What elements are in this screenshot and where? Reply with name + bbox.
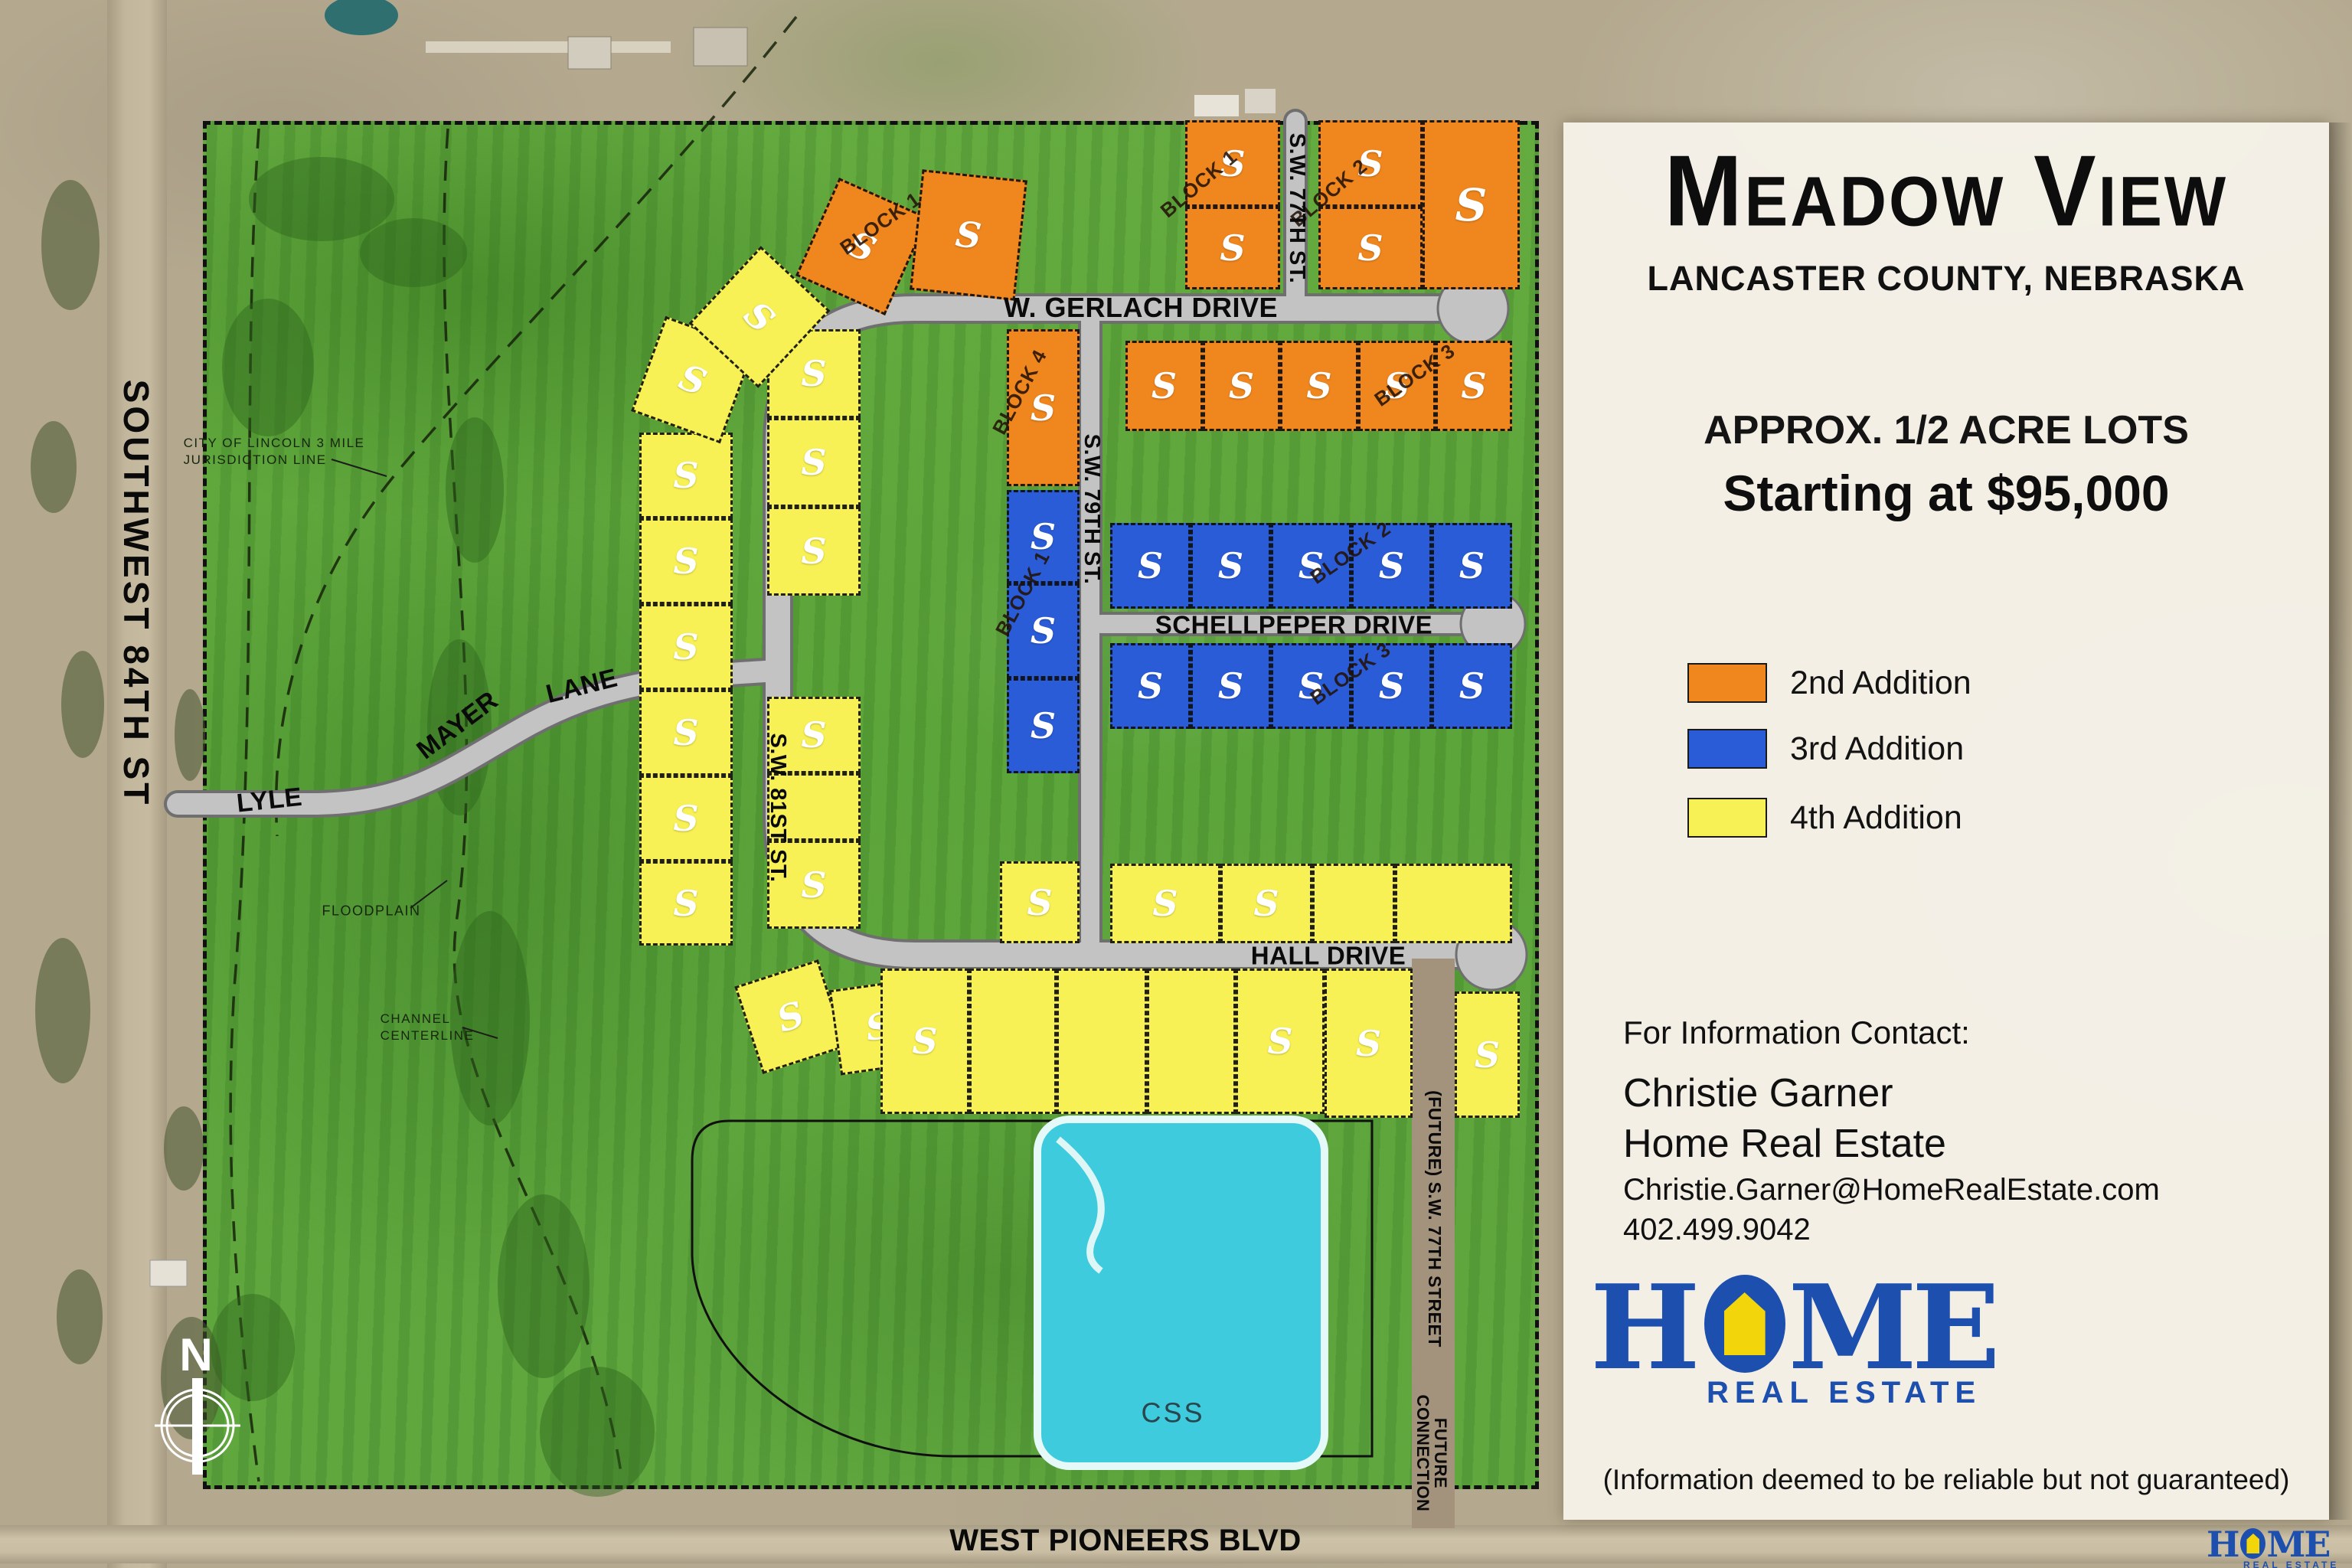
sold-marker: S: [673, 629, 698, 665]
small-pond: [325, 0, 398, 35]
sold-marker: S: [1151, 368, 1177, 403]
sold-marker: S: [1152, 886, 1178, 921]
sold-marker: S: [1356, 1026, 1381, 1061]
channel-woods: [211, 157, 655, 1497]
sold-marker: S: [1267, 1024, 1292, 1059]
street-label-hall: HALL DRIVE: [1251, 943, 1406, 970]
legend-swatch-3rd-addition: [1687, 729, 1767, 769]
sold-marker: S: [1027, 885, 1052, 920]
legend-swatch-4th-addition: [1687, 798, 1767, 838]
legend-row-3rd-addition: 3rd Addition: [1687, 729, 1964, 769]
home-logo-o-house-icon: [1704, 1275, 1785, 1373]
sold-marker: S: [1459, 668, 1485, 704]
sold-marker: S: [673, 458, 698, 493]
lot: S: [639, 604, 733, 690]
lot: S: [880, 969, 969, 1114]
lot: S: [1280, 341, 1358, 431]
map-note-channel: CHANNEL CENTERLINE: [381, 1011, 475, 1044]
map-note-css: CSS: [1141, 1396, 1204, 1432]
sold-marker: S: [801, 445, 826, 480]
map-note-floodplain: FLOODPLAIN: [322, 902, 420, 920]
lot: S: [1191, 523, 1271, 609]
sold-marker: S: [801, 534, 826, 569]
development-location: LANCASTER COUNTY, NEBRASKA: [1563, 259, 2329, 299]
lot: S: [767, 418, 861, 507]
lot: S: [1432, 523, 1512, 609]
lot: [1312, 864, 1395, 943]
lot: S: [639, 861, 733, 946]
lot: S: [1110, 643, 1191, 729]
lot: S: [1125, 341, 1203, 431]
sold-marker: S: [1229, 368, 1254, 403]
panel-edge-shadow: [2329, 122, 2352, 1520]
flyer-root: SSSSSSSSSSSSSSSSSSSSSSSSSSSSSSSSSSSSSSSS…: [0, 0, 2352, 1568]
lot: [1395, 864, 1512, 943]
sold-marker: S: [1138, 548, 1163, 583]
price-text: Starting at $95,000: [1563, 464, 2329, 522]
street-label-futconn: FUTURE CONNECTION: [1414, 1395, 1449, 1512]
sold-marker: S: [738, 296, 781, 338]
lot: S: [1203, 341, 1280, 431]
sold-marker: S: [1379, 548, 1404, 583]
sold-marker: S: [801, 867, 826, 903]
street-label-future77: (FUTURE) S.W. 77TH STREET: [1426, 1090, 1444, 1347]
lot: S: [767, 507, 861, 596]
lot: S: [639, 690, 733, 776]
sold-marker: S: [673, 544, 698, 579]
legend-swatch-2nd-addition: [1687, 663, 1767, 703]
sold-marker: S: [1379, 668, 1404, 704]
sold-marker: S: [673, 886, 698, 921]
sold-marker: S: [673, 801, 698, 836]
sold-marker: S: [1138, 668, 1163, 704]
lot: S: [639, 518, 733, 604]
street-label-gerlach: W. GERLACH DRIVE: [1004, 293, 1278, 322]
legend-row-2nd-addition: 2nd Addition: [1687, 663, 1971, 703]
sold-marker: S: [1459, 548, 1485, 583]
map-note-north: N: [179, 1325, 212, 1385]
contact-email: Christie.Garner@HomeRealEstate.com: [1623, 1173, 2160, 1207]
lot: S: [1191, 643, 1271, 729]
sold-marker: S: [912, 1024, 937, 1059]
sold-marker: S: [954, 216, 983, 253]
sold-marker: S: [1461, 368, 1486, 403]
sold-marker: S: [1475, 1037, 1500, 1073]
street-label-sw84: SOUTHWEST 84TH ST: [118, 380, 155, 808]
home-logo-o-house-icon: [2240, 1528, 2265, 1559]
contact-heading: For Information Contact:: [1623, 1014, 1970, 1051]
legend-label: 3rd Addition: [1790, 730, 1964, 768]
sold-marker: S: [773, 996, 808, 1037]
lot: S: [1185, 207, 1280, 289]
contact-company: Home Real Estate: [1623, 1121, 1946, 1167]
lot: [969, 969, 1057, 1114]
lot: S: [1325, 969, 1413, 1118]
lot: S: [910, 169, 1027, 301]
map-note-jurisdiction: CITY OF LINCOLN 3 MILE JURISDICTION LINE: [184, 435, 365, 469]
lot: S: [1432, 643, 1512, 729]
lot: S: [1000, 861, 1080, 943]
sold-marker: S: [1306, 368, 1331, 403]
lot: [1057, 969, 1147, 1114]
lot: S: [1110, 864, 1220, 943]
home-real-estate-logo: HMEREAL ESTATE: [1590, 1275, 1995, 1410]
sold-marker: S: [1218, 668, 1243, 704]
home-real-estate-logo-mini: HMEREAL ESTATE: [2207, 1528, 2339, 1568]
sold-marker: S: [1031, 708, 1056, 743]
disclaimer-text: (Information deemed to be reliable but n…: [1563, 1464, 2329, 1496]
lot: S: [1110, 523, 1191, 609]
lot-size-text: APPROX. 1/2 ACRE LOTS: [1563, 407, 2329, 453]
sold-marker: S: [1455, 183, 1488, 227]
legend-label: 4th Addition: [1790, 799, 1962, 837]
contact-phone: 402.499.9042: [1623, 1213, 1811, 1247]
street-label-sw81: S.W. 81ST ST.: [766, 733, 789, 882]
sold-marker: S: [1031, 390, 1056, 426]
development-title: Meadow View: [1563, 140, 2329, 241]
legend-label: 2nd Addition: [1790, 665, 1971, 702]
lot: S: [1007, 678, 1080, 773]
sold-marker: S: [1220, 230, 1245, 266]
sold-marker: S: [1357, 230, 1383, 266]
street-label-sw77: S.W. 77TH ST.: [1285, 133, 1308, 284]
sold-marker: S: [1218, 548, 1243, 583]
info-panel: Meadow View LANCASTER COUNTY, NEBRASKA A…: [1563, 122, 2329, 1520]
contact-name: Christie Garner: [1623, 1070, 1893, 1116]
lot: S: [1423, 120, 1520, 289]
lot: S: [1236, 969, 1325, 1114]
legend-row-4th-addition: 4th Addition: [1687, 798, 1962, 838]
street-label-sw79: S.W. 79TH ST.: [1080, 434, 1103, 585]
lot: S: [1220, 864, 1312, 943]
sold-marker: S: [801, 356, 826, 391]
sold-marker: S: [1253, 886, 1279, 921]
street-label-pioneers: WEST PIONEERS BLVD: [949, 1524, 1301, 1557]
sold-marker: S: [673, 715, 698, 750]
sold-marker: S: [1031, 613, 1056, 648]
lot: S: [1318, 207, 1423, 289]
lot: S: [639, 433, 733, 518]
street-label-schell: SCHELLPEPER DRIVE: [1155, 612, 1432, 639]
sold-marker: S: [801, 717, 826, 753]
lot: S: [1455, 991, 1520, 1118]
lot: S: [639, 776, 733, 861]
lot: [1147, 969, 1236, 1114]
sold-marker: S: [675, 359, 711, 401]
